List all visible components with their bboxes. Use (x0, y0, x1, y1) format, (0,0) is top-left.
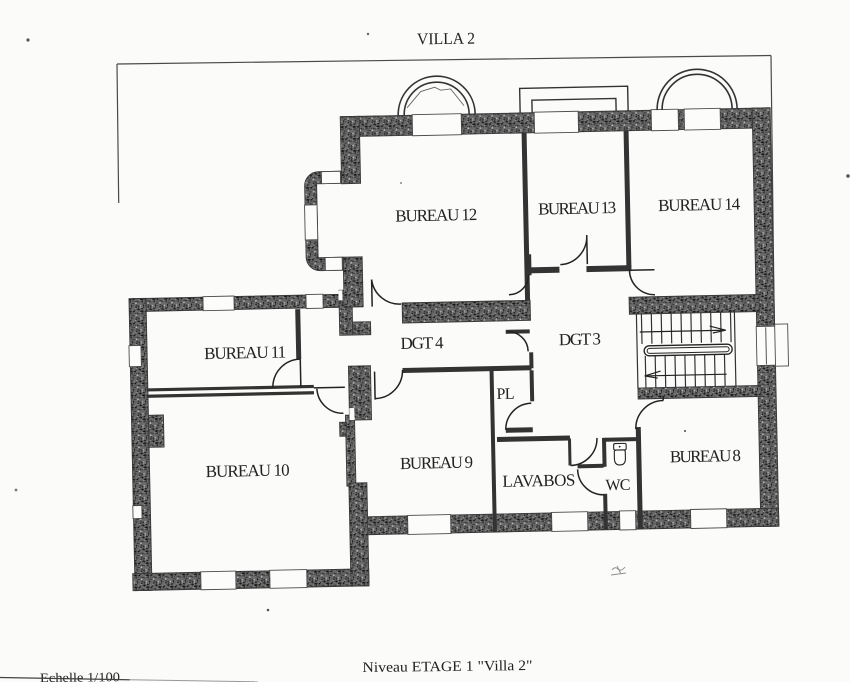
svg-text:DGT 3: DGT 3 (559, 329, 601, 349)
svg-text:BUREAU 14: BUREAU 14 (658, 194, 741, 215)
svg-text:WC: WC (605, 477, 630, 495)
svg-text:Niveau ETAGE 1 "Villa 2": Niveau ETAGE 1 "Villa 2" (362, 658, 532, 676)
svg-text:BUREAU 11: BUREAU 11 (204, 342, 286, 363)
svg-text:BUREAU 10: BUREAU 10 (205, 460, 289, 481)
svg-text:Echelle 1/100: Echelle 1/100 (40, 669, 120, 682)
svg-text:BUREAU 9: BUREAU 9 (400, 453, 473, 474)
svg-text:LAVABOS: LAVABOS (502, 470, 575, 491)
svg-text:VILLA 2: VILLA 2 (417, 29, 475, 49)
svg-text:PL: PL (496, 386, 514, 403)
svg-text:DGT 4: DGT 4 (400, 333, 444, 353)
svg-text:BUREAU 8: BUREAU 8 (670, 446, 741, 466)
svg-text:BUREAU 13: BUREAU 13 (538, 198, 616, 219)
svg-text:BUREAU 12: BUREAU 12 (395, 205, 477, 226)
